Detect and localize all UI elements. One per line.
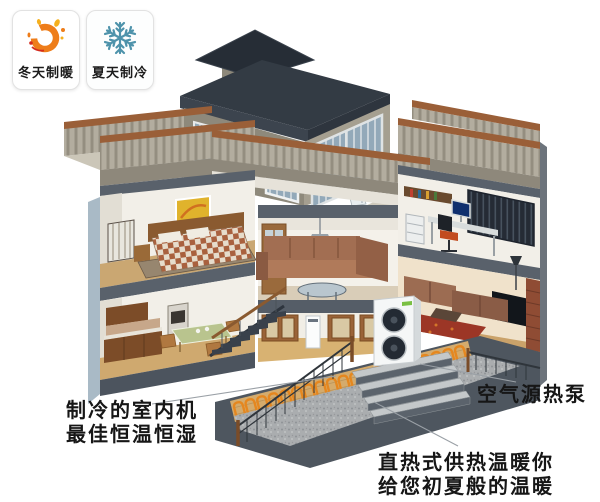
brick-column — [526, 278, 540, 352]
radiator — [108, 220, 134, 262]
promo-page: { "canvas": { "width": 600, "height": 50… — [0, 0, 600, 502]
winter-heating-badge: 冬天制暖 — [12, 10, 80, 90]
indoor-unit-callout-line1: 制冷的室内机 — [66, 399, 198, 423]
snowflake-icon — [98, 16, 142, 60]
sectional-sofa — [256, 236, 388, 282]
direct-heating-callout-line2: 给您初夏般的温暖 — [378, 475, 554, 499]
winter-badge-label: 冬天制暖 — [18, 62, 74, 81]
indoor-unit-callout-line2: 最佳恒温恒湿 — [66, 423, 198, 447]
indoor-unit-callout: 制冷的室内机 最佳恒温恒湿 — [66, 399, 198, 447]
indoor-ac-unit — [306, 316, 320, 348]
right-outer-wall — [540, 142, 547, 386]
heat-pump-callout-text: 空气源热泵 — [477, 384, 587, 406]
nightstand — [134, 244, 150, 262]
direct-heating-callout-line1: 直热式供热温暖你 — [378, 451, 554, 475]
direct-heating-callout: 直热式供热温暖你 给您初夏般的温暖 — [378, 451, 554, 499]
summer-cooling-badge: 夏天制冷 — [86, 10, 154, 90]
heat-pump-unit — [374, 296, 421, 366]
left-outer-wall — [88, 197, 100, 404]
summer-badge-label: 夏天制冷 — [92, 62, 148, 81]
sun-swirl-icon — [24, 16, 68, 60]
living-room — [256, 205, 398, 313]
heat-pump-callout: 空气源热泵 — [477, 384, 587, 406]
office-cabinet — [406, 214, 424, 244]
